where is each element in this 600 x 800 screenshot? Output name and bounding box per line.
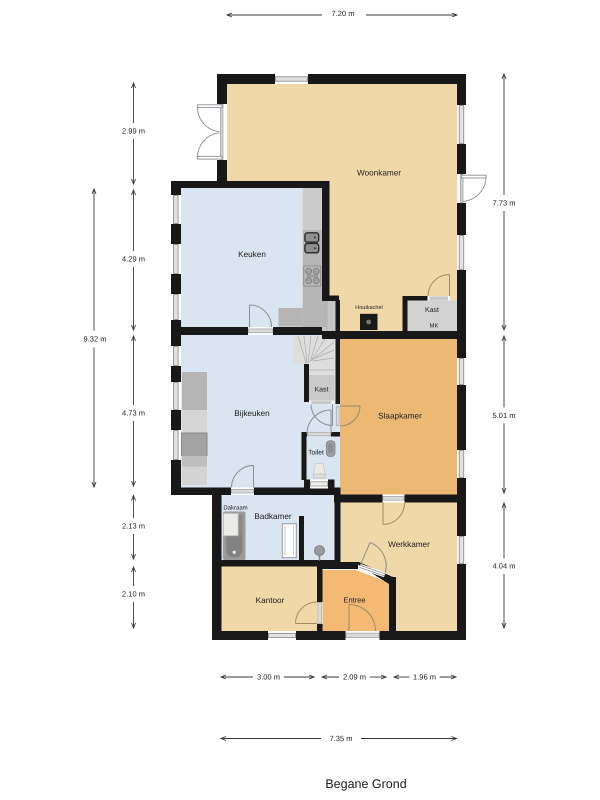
svg-text:1.96 m: 1.96 m [413,673,436,682]
svg-text:Begane Grond: Begane Grond [325,777,406,791]
svg-text:2.99 m: 2.99 m [122,127,145,136]
svg-text:7.73 m: 7.73 m [493,199,516,208]
svg-text:Kast: Kast [314,387,328,394]
svg-text:2.13 m: 2.13 m [122,522,145,531]
svg-text:Bijkeuken: Bijkeuken [234,409,270,418]
svg-text:5.01 m: 5.01 m [493,411,516,420]
svg-text:Dakraam: Dakraam [223,505,247,512]
svg-text:Houtkachel: Houtkachel [355,305,383,311]
svg-text:Entree: Entree [343,596,365,605]
svg-text:Kast: Kast [425,307,439,314]
svg-text:7.20 m: 7.20 m [332,9,355,18]
svg-text:Kantoor: Kantoor [256,596,285,605]
svg-text:Keuken: Keuken [238,250,266,259]
svg-text:2.09 m: 2.09 m [343,673,366,682]
svg-text:Woonkamer: Woonkamer [357,169,401,178]
svg-text:2.10 m: 2.10 m [122,590,145,599]
svg-text:7.35 m: 7.35 m [330,734,353,743]
svg-text:Werkkamer: Werkkamer [388,540,430,549]
svg-text:4.29 m: 4.29 m [122,255,145,264]
svg-text:Badkamer: Badkamer [254,512,292,521]
svg-text:9.32 m: 9.32 m [84,335,107,344]
svg-text:4.04 m: 4.04 m [493,562,516,571]
svg-text:3.00 m: 3.00 m [257,673,280,682]
svg-text:MK: MK [430,323,439,330]
svg-text:Toilet: Toilet [308,450,324,457]
svg-text:Slaapkamer: Slaapkamer [378,412,422,421]
svg-text:4.73 m: 4.73 m [122,409,145,418]
